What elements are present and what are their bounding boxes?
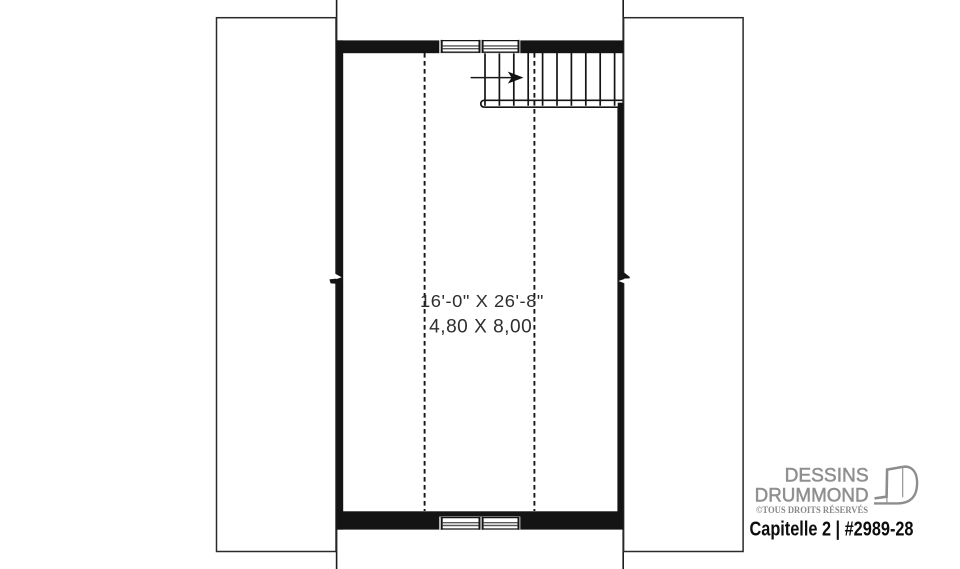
svg-text:4,80 X 8,00: 4,80 X 8,00 (429, 317, 532, 338)
svg-text:DRUMMOND: DRUMMOND (755, 485, 869, 507)
svg-text:DESSINS: DESSINS (785, 466, 869, 487)
svg-text:Capitelle 2 | #2989-28: Capitelle 2 | #2989-28 (750, 519, 914, 541)
svg-text:16'-0" X 26'-8": 16'-0" X 26'-8" (420, 291, 544, 311)
svg-text:©TOUS DROITS RÉSERVÉS: ©TOUS DROITS RÉSERVÉS (756, 504, 868, 516)
